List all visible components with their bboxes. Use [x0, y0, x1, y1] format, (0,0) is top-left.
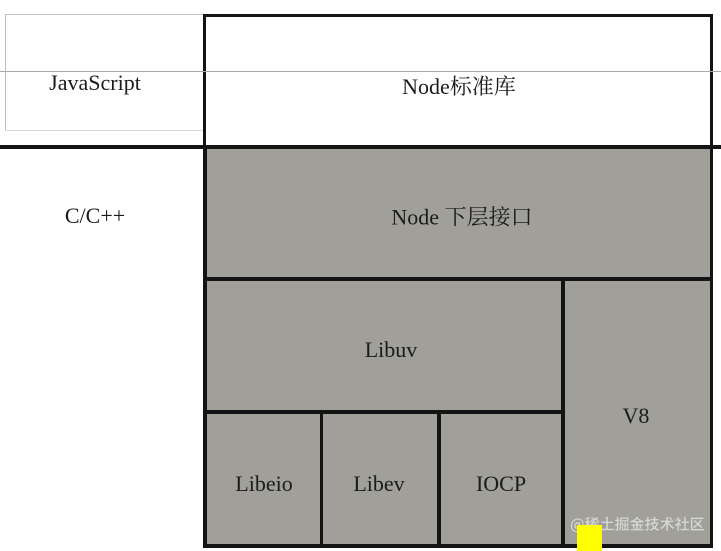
svg-text:Node: Node [402, 74, 450, 99]
svg-text:Libev: Libev [353, 471, 404, 496]
svg-text:JavaScript: JavaScript [49, 70, 141, 95]
svg-text:IOCP: IOCP [476, 471, 526, 496]
svg-text:Libuv: Libuv [365, 337, 418, 362]
svg-text:C/C++: C/C++ [65, 203, 125, 228]
svg-text:Libeio: Libeio [235, 471, 292, 496]
svg-text:V8: V8 [623, 403, 650, 428]
svg-text:Node: Node [391, 205, 439, 230]
